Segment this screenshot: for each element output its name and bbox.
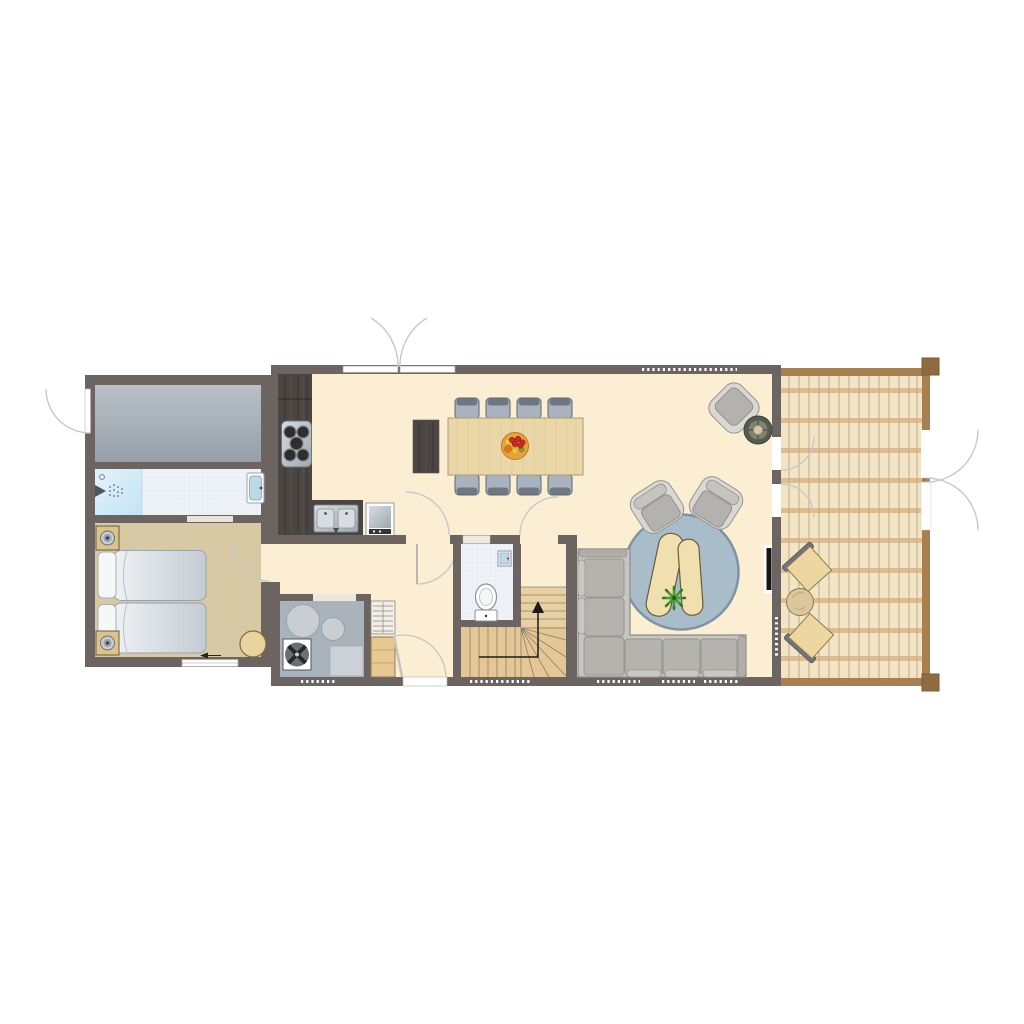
nightstand-lamp-icon	[96, 526, 119, 550]
dining-chair-icon	[486, 474, 510, 495]
sideboard-icon	[413, 420, 439, 473]
main-building	[232, 318, 781, 686]
pouf-icon	[240, 631, 266, 657]
deck-gate-opening	[921, 482, 931, 530]
deck-gate-swing-arc-icon	[926, 478, 978, 530]
kitchen-sink-icon	[314, 505, 358, 534]
toilet-room	[453, 544, 521, 627]
hob-icon	[282, 421, 312, 467]
wardrobe-cabinet-icon	[371, 637, 395, 677]
washing-machine-icon	[330, 646, 363, 676]
stair-living-wall	[566, 535, 577, 686]
floor-plan-drawing	[0, 0, 1024, 1024]
deck-gate-swing-arc-icon	[926, 430, 978, 482]
bedroom-passage	[261, 544, 281, 582]
double-entry-door-icon	[343, 318, 455, 373]
dining-chair-icon	[517, 474, 541, 495]
deck-terrace	[781, 358, 978, 691]
toilet-icon	[475, 584, 497, 621]
deck-post	[922, 358, 939, 375]
bathroom-washbasin-icon	[247, 473, 264, 503]
dining-chair-icon	[548, 474, 572, 495]
window-strip-icon	[85, 389, 91, 433]
stair-door-opening	[520, 535, 558, 544]
deck-frame-top	[781, 368, 922, 376]
dining-chair-icon	[455, 398, 479, 419]
hand-basin-icon	[498, 551, 511, 566]
deck-door-opening	[772, 484, 781, 517]
built-in-oven-icon	[366, 503, 394, 536]
side-stool-icon	[744, 416, 772, 444]
toilet-door	[463, 536, 490, 544]
utility-room	[271, 594, 371, 686]
stair-landing-floor	[521, 544, 566, 587]
dining-chair-icon	[548, 398, 572, 419]
deck-door-opening	[772, 437, 781, 470]
hall-door-opening	[406, 535, 450, 544]
ventilation-fan-icon	[283, 639, 311, 670]
fruit-bowl-icon	[502, 433, 529, 460]
bathroom-door-threshold	[187, 516, 233, 522]
storage-entry-door-swing-arc-icon	[46, 389, 90, 433]
shelf-closet-icon	[371, 601, 395, 634]
deck-post	[922, 674, 939, 691]
dining-chair-icon	[517, 398, 541, 419]
dining-chair-icon	[455, 474, 479, 495]
floor-plan-page	[0, 0, 1024, 1024]
deck-gate-opening	[921, 430, 931, 478]
boiler-icon	[287, 605, 320, 638]
dining-chair-icon	[486, 398, 510, 419]
storage-room	[95, 385, 261, 462]
deck-table-icon	[787, 589, 814, 616]
tv-icon	[764, 545, 772, 593]
left-building	[46, 375, 271, 667]
nightstand-lamp-icon	[96, 631, 119, 655]
boiler-icon	[322, 618, 345, 641]
deck-frame-bottom	[781, 678, 922, 686]
plant-icon	[663, 587, 685, 609]
utility-door	[313, 594, 356, 601]
